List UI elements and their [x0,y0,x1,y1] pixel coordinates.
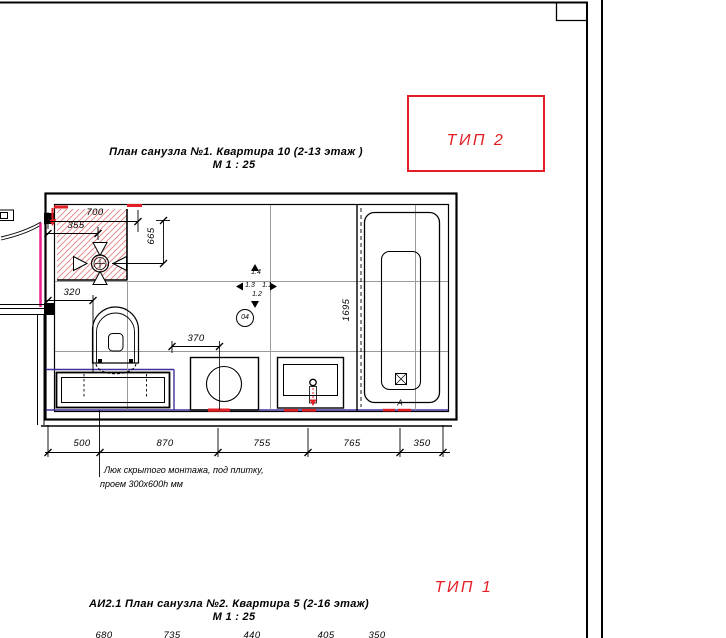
adjacent-wall-door [0,210,55,426]
plan1-scale: М 1 : 25 [213,159,256,171]
dim-bottom-500: 500 [73,439,90,449]
detail-circle-label: 04 [241,314,249,322]
plan2-scale: М 1 : 25 [213,611,256,623]
washing-machine [191,358,259,412]
bathtub [357,205,440,412]
dim2-clipped-1: 735 [163,631,180,638]
dim-665: 665 [147,227,157,244]
dim-bottom-765: 765 [343,439,360,449]
drawing-sheet: План санузла №1. Квартира 10 (2-13 этаж … [0,0,726,638]
dim-700: 700 [86,208,103,218]
view-label-1-2: 1.2 [252,291,262,299]
sink [278,358,344,412]
dim2-clipped-2: 440 [243,631,260,638]
dim-bottom-755: 755 [253,439,270,449]
door-swing-arc [1,222,41,237]
dim-320: 320 [63,288,80,298]
plan2-title: АИ2.1 План санузла №2. Квартира 5 (2-16 … [89,598,369,610]
section-letter: А [397,400,402,409]
dim-370: 370 [187,334,204,344]
dim2-clipped-3: 405 [317,631,334,638]
floor-plan-canvas [0,0,726,638]
plan1-title: План санузла №1. Квартира 10 (2-13 этаж … [109,146,363,158]
tip1-label: ТИП 1 [435,579,494,597]
dim-1695: 1695 [342,299,352,322]
dim2-clipped-4: 350 [368,631,385,638]
note-line2: проем 300х600h мм [100,480,183,490]
note-line1: Люк скрытого монтажа, под плитку, [104,466,264,476]
tip2-label: ТИП 2 [447,132,506,150]
dim2-clipped-0: 680 [95,631,112,638]
dim-355: 355 [67,221,84,231]
view-label-1-3: 1.3 [245,282,255,290]
view-label-1-4: 1.4 [251,269,261,277]
dim-bottom-870: 870 [156,439,173,449]
drain-icon [396,374,407,385]
access-hatch-box [57,373,170,408]
tip2-frame: ТИП 2 [407,95,545,172]
dim-bottom-350: 350 [413,439,430,449]
view-label-1-1: 1.1 [262,282,272,290]
faucet-icon [310,379,316,385]
